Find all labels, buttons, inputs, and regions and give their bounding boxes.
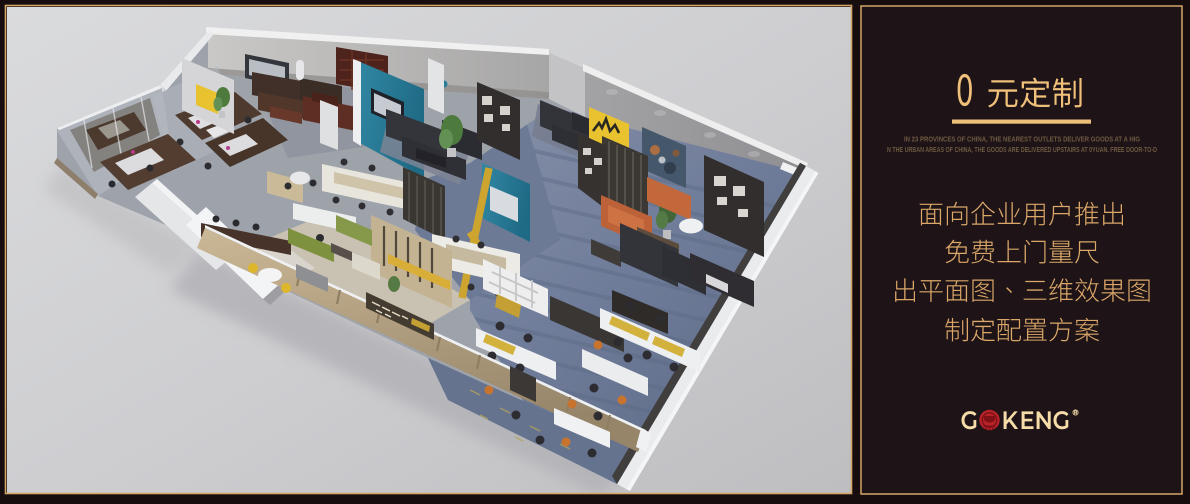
- svg-text:N THE URBAN AREAS OF CHINA, TH: N THE URBAN AREAS OF CHINA, THE GOODS AR…: [887, 145, 1157, 154]
- svg-text:IN 23 PROVINCES OF CHINA, THE: IN 23 PROVINCES OF CHINA, THE NEAREST OU…: [904, 135, 1140, 144]
